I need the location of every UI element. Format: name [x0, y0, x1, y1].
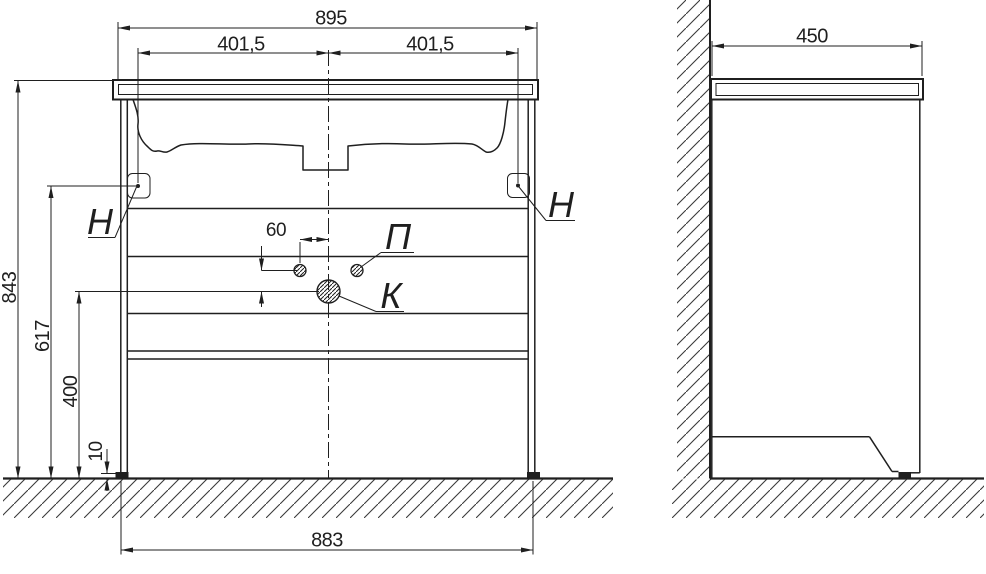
dim-text-foot-height: 10 [86, 441, 107, 461]
side-view: 450 [672, 0, 984, 518]
vanity-drawing-svg: 895 401,5 401,5 843 617 400 10 883 6 [0, 0, 986, 574]
callout-leader [339, 296, 376, 312]
callout-leader [519, 187, 546, 221]
callout-hinge-right: Н [548, 184, 575, 225]
callout-handle-holes: П [385, 216, 412, 257]
basin-rim-inner [119, 85, 533, 95]
dim-text-overall-height: 843 [0, 271, 21, 303]
dim-text-drain-hole-height: 400 [60, 375, 82, 407]
callout-leader [115, 187, 137, 238]
dim-text-overall-width: 895 [315, 8, 347, 30]
basin-bowl-profile [133, 100, 508, 171]
side-rim-inner [716, 84, 919, 96]
wall-hatch [677, 0, 710, 479]
basin-rim-outer [113, 80, 538, 100]
dim-text-right-hinge-offset: 401,5 [406, 34, 454, 56]
toe-kick-chamfer [870, 437, 893, 472]
front-view-dimensions: 895 401,5 401,5 843 617 400 10 883 6 [0, 8, 575, 555]
technical-drawing-canvas: 895 401,5 401,5 843 617 400 10 883 6 [0, 0, 986, 574]
callout-drain-hole: К [380, 275, 403, 316]
dim-text-hinge-height: 617 [32, 320, 54, 352]
floor-hatch-front [3, 480, 613, 519]
dim-text-left-hinge-offset: 401,5 [217, 34, 265, 56]
callout-hinge-left: Н [87, 201, 114, 242]
side-rim-outer [711, 79, 923, 100]
callout-leader [361, 253, 381, 268]
dim-text-depth: 450 [796, 26, 828, 48]
dim-text-handle-hole-offset: 60 [266, 220, 286, 241]
dim-text-cabinet-width: 883 [311, 530, 343, 552]
floor-hatch-side [672, 480, 984, 519]
